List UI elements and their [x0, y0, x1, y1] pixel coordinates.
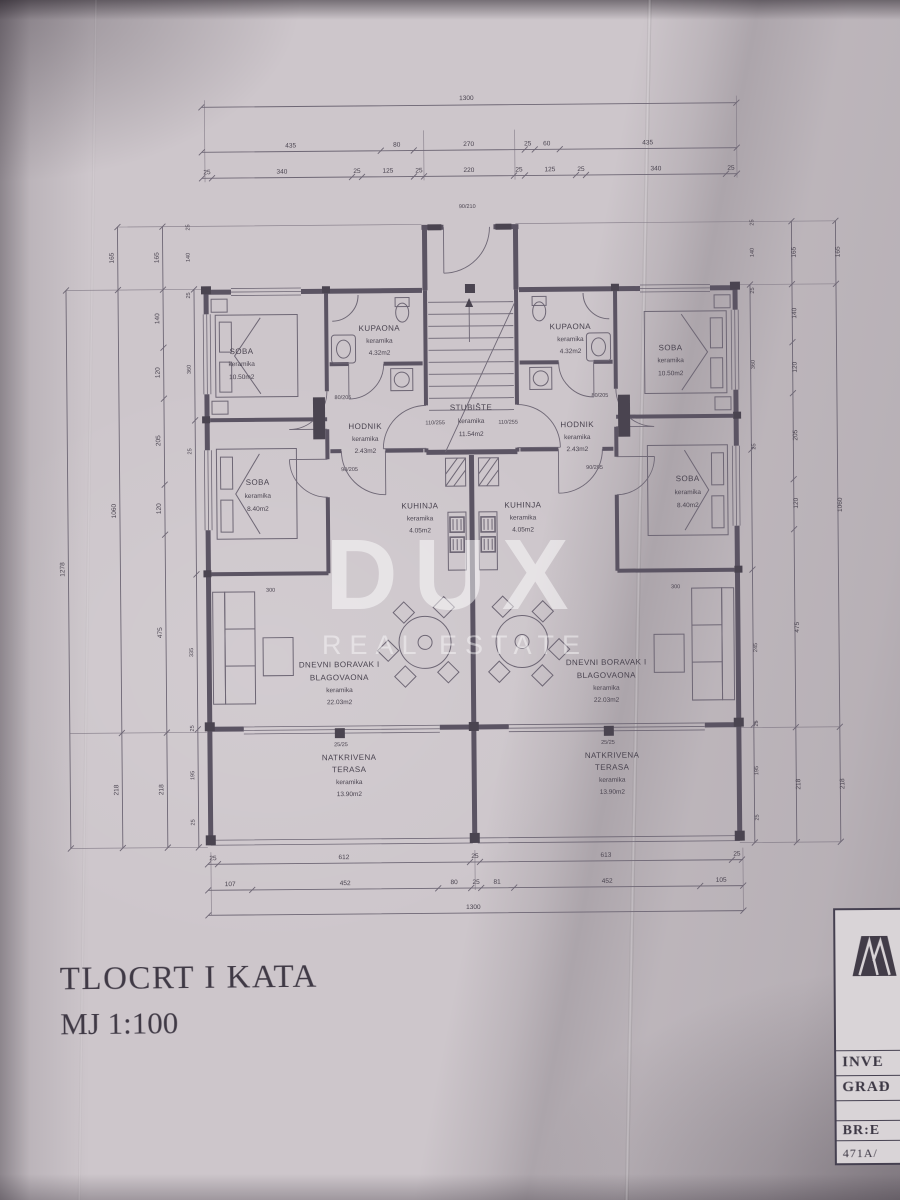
svg-text:25: 25 [471, 853, 479, 860]
svg-text:140: 140 [791, 307, 798, 318]
title-block-row-investor: INVE [836, 1050, 900, 1076]
room-area: 4.32m2 [369, 350, 391, 357]
living-room-sofa [213, 592, 294, 705]
svg-text:245: 245 [753, 643, 759, 652]
room-material: keramika [675, 489, 702, 496]
room-material: keramika [336, 779, 363, 786]
svg-text:165: 165 [791, 246, 798, 257]
svg-text:140: 140 [186, 253, 192, 262]
room-label-dnevni-left-2: BLAGOVAONA [310, 673, 369, 683]
room-area: 22.03m2 [327, 699, 353, 706]
room-label-terasa-left: NATKRIVENA [322, 753, 377, 762]
title-block-row-code: 471A/ [837, 1140, 900, 1166]
svg-text:300: 300 [266, 588, 275, 594]
svg-text:195: 195 [754, 766, 760, 775]
title-block-logo-area [835, 910, 900, 1051]
room-label-soba1-right: SOBA [659, 343, 683, 352]
dim-bottom-total: 1300 [466, 904, 481, 911]
room-material: keramika [593, 685, 620, 692]
title-block-row-building: GRAĐ [836, 1075, 900, 1101]
dim-value: 1300 [466, 904, 481, 911]
svg-text:25: 25 [185, 224, 191, 230]
svg-text:125: 125 [382, 168, 393, 175]
svg-text:452: 452 [340, 880, 351, 887]
watermark-brand: DUX [325, 518, 584, 633]
room-area: 8.40m2 [677, 502, 699, 509]
room-label-terasa-right-2: TERASA [595, 763, 630, 772]
svg-text:125: 125 [544, 166, 555, 173]
room-area: 13.90m2 [337, 791, 363, 798]
room-material: keramika [599, 777, 626, 784]
svg-text:140: 140 [750, 248, 756, 257]
svg-text:218: 218 [839, 778, 846, 789]
svg-text:360: 360 [751, 360, 757, 369]
svg-text:205: 205 [792, 429, 799, 440]
stair-treads [428, 298, 516, 453]
svg-text:475: 475 [157, 627, 164, 638]
svg-text:105: 105 [716, 877, 727, 884]
room-label-kuhinja-right: KUHINJA [504, 500, 541, 509]
svg-text:1060: 1060 [111, 503, 118, 518]
room-label-dnevni-right-2: BLAGOVAONA [577, 671, 636, 681]
svg-text:110/255: 110/255 [498, 420, 518, 426]
room-material: keramika [557, 336, 584, 343]
room-label-kupaona-left: KUPAONA [359, 324, 401, 333]
svg-text:360: 360 [187, 365, 193, 374]
watermark-tagline: REAL ESTATE [322, 630, 588, 661]
svg-text:218: 218 [795, 778, 802, 789]
room-material: keramika [564, 434, 591, 441]
room-label-terasa-left-2: TERASA [332, 765, 367, 774]
dim-left-total: 1278 [59, 562, 66, 577]
room-area: 2.43m2 [567, 446, 589, 453]
svg-text:25: 25 [524, 140, 532, 147]
room-area: 10.50m2 [658, 370, 684, 377]
room-area: 11.54m2 [459, 431, 484, 438]
svg-text:25: 25 [203, 169, 211, 176]
svg-text:90/205: 90/205 [586, 465, 603, 471]
svg-text:270: 270 [463, 141, 474, 148]
dim-right-col4: 2514025360252452519525 [749, 219, 760, 820]
svg-text:25: 25 [190, 725, 196, 731]
svg-text:25: 25 [186, 292, 192, 298]
room-material: keramika [352, 436, 379, 443]
room-label-kuhinja-left: KUHINJA [401, 501, 438, 510]
title-block: INVE GRAĐ BR:E 471A/ [833, 908, 900, 1166]
svg-text:25: 25 [209, 855, 217, 862]
dim-value: 1278 [59, 562, 66, 577]
svg-text:612: 612 [338, 854, 349, 861]
room-label-kupaona-right: KUPAONA [550, 322, 592, 331]
svg-text:90/210: 90/210 [459, 204, 476, 210]
svg-text:475: 475 [794, 621, 801, 632]
svg-text:165: 165 [154, 252, 161, 263]
svg-text:205: 205 [155, 435, 162, 446]
svg-text:120: 120 [156, 503, 163, 514]
svg-text:195: 195 [190, 771, 196, 780]
title-block-spacer [836, 1100, 900, 1121]
extension-guides [64, 95, 841, 917]
svg-text:218: 218 [113, 784, 120, 795]
svg-text:25: 25 [749, 219, 755, 225]
svg-text:110/255: 110/255 [425, 420, 445, 426]
svg-text:340: 340 [650, 165, 661, 172]
svg-text:25: 25 [751, 443, 757, 449]
stair-door [443, 227, 489, 273]
svg-text:1060: 1060 [837, 497, 844, 512]
svg-text:81: 81 [494, 879, 502, 886]
dim-top-total: 1300 [459, 95, 474, 102]
svg-text:25: 25 [754, 720, 760, 726]
room-material: keramika [458, 418, 485, 425]
svg-text:25: 25 [577, 166, 585, 173]
svg-text:340: 340 [276, 169, 287, 176]
svg-text:165: 165 [835, 246, 842, 257]
room-material: keramika [326, 687, 353, 694]
room-area: 4.32m2 [560, 348, 582, 355]
room-label-terasa-right: NATKRIVENA [585, 751, 640, 760]
room-area: 10.50m2 [229, 374, 255, 381]
svg-text:25: 25 [727, 165, 735, 172]
svg-text:120: 120 [793, 497, 800, 508]
svg-text:25: 25 [415, 167, 423, 174]
room-material: keramika [366, 338, 393, 345]
title-block-row-number: BR:E [837, 1120, 900, 1141]
svg-text:140: 140 [154, 313, 161, 324]
room-material: keramika [657, 357, 684, 364]
svg-text:80: 80 [393, 142, 401, 149]
room-material: keramika [245, 493, 272, 500]
room-area: 13.90m2 [600, 789, 626, 796]
room-label-hodnik-left: HODNIK [348, 422, 382, 431]
dim-left-col4: 2514025360253352519525 [185, 224, 196, 825]
svg-text:25: 25 [473, 879, 481, 886]
svg-text:335: 335 [189, 648, 195, 657]
dim-value: 1300 [459, 95, 474, 102]
svg-text:107: 107 [225, 881, 236, 888]
room-area: 22.03m2 [594, 697, 620, 704]
dim-top-row2: 435802702560435 [285, 139, 653, 149]
svg-text:300: 300 [671, 584, 680, 590]
svg-text:435: 435 [642, 139, 653, 146]
room-label-soba1-left: SOBA [230, 347, 254, 356]
room-label-soba2-right: SOBA [676, 474, 700, 483]
svg-text:218: 218 [158, 784, 165, 795]
svg-text:25: 25 [353, 168, 361, 175]
room-area: 2.43m2 [355, 448, 377, 455]
svg-text:25: 25 [750, 287, 756, 293]
drawing-scale: MJ 1:100 [60, 1004, 318, 1043]
svg-text:60: 60 [543, 140, 551, 147]
svg-text:25/25: 25/25 [601, 740, 615, 746]
svg-text:25: 25 [733, 851, 741, 858]
company-logo-icon [835, 910, 900, 1051]
svg-text:435: 435 [285, 142, 296, 149]
room-area: 8.40m2 [247, 506, 269, 513]
svg-text:25/25: 25/25 [334, 742, 348, 748]
room-label-dnevni-left: DNEVNI BORAVAK I [299, 660, 380, 670]
bedroom1-bed [211, 299, 298, 415]
svg-text:25: 25 [755, 814, 761, 820]
room-label-stairs: STUBIŠTE [450, 403, 492, 412]
svg-text:120: 120 [155, 367, 162, 378]
svg-text:25: 25 [191, 819, 197, 825]
svg-text:25: 25 [187, 448, 193, 454]
svg-text:90/205: 90/205 [341, 467, 358, 473]
svg-text:220: 220 [463, 167, 474, 174]
drawing-title: TLOCRT I KATA [60, 959, 318, 999]
svg-text:25: 25 [515, 167, 523, 174]
room-label-hodnik-right: HODNIK [560, 420, 594, 429]
svg-text:613: 613 [600, 852, 611, 859]
svg-text:165: 165 [109, 252, 116, 263]
room-label-soba2-left: SOBA [246, 478, 270, 487]
svg-text:120: 120 [792, 361, 799, 372]
photographed-floor-plan: 1300 435802702560435 2534025125252202512… [0, 0, 900, 1200]
room-material: keramika [228, 361, 255, 368]
drawing-caption: TLOCRT I KATA MJ 1:100 [60, 959, 319, 1043]
svg-text:452: 452 [602, 878, 613, 885]
svg-text:80: 80 [451, 879, 459, 886]
